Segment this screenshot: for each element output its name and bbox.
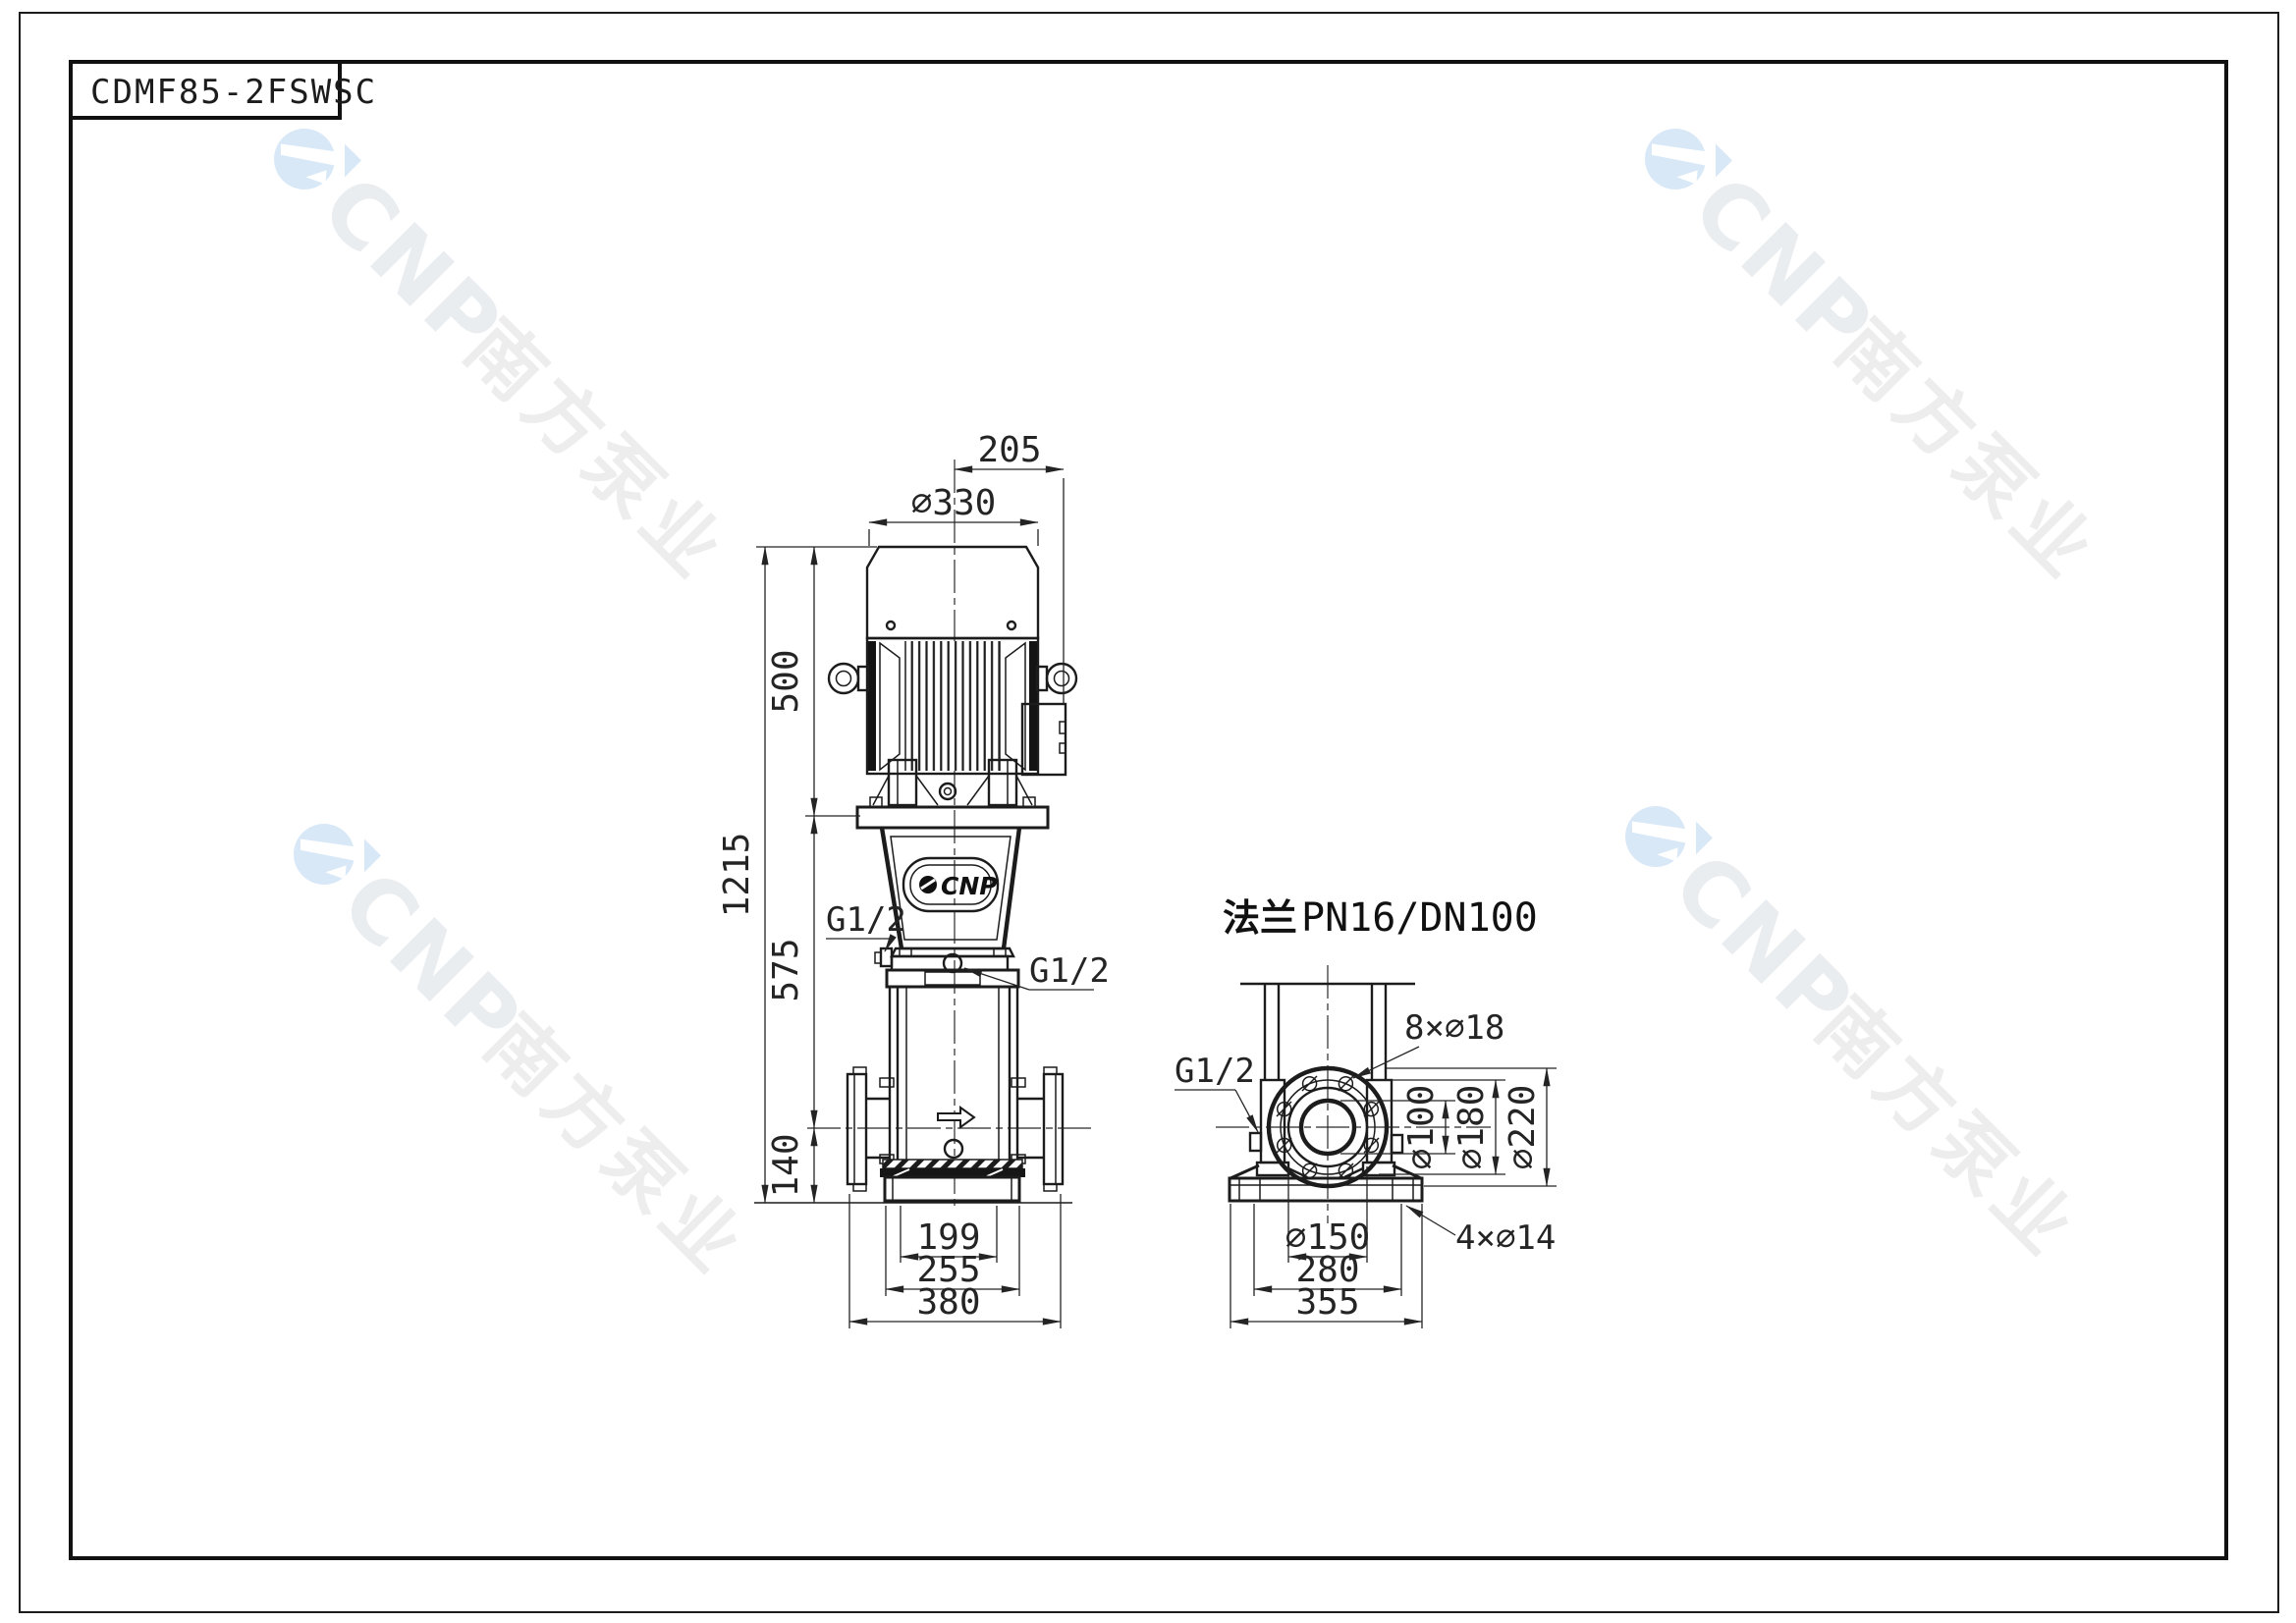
port-label-right: G1/2 [1029, 951, 1110, 991]
side-view: 法兰PN16/DN100 8×∅18 G1/2 ∅100 ∅180 ∅220 [1175, 895, 1557, 1328]
side-port-fitting [1250, 1133, 1261, 1151]
port-label-left: G1/2 [826, 900, 906, 940]
motor-fins [905, 641, 1000, 771]
dim-shaft-offset: 205 [977, 430, 1041, 470]
dim-pump-body-height: 575 [766, 938, 806, 1001]
dim-inlet-height: 140 [766, 1133, 806, 1197]
motor-shield-panel-left [880, 643, 900, 770]
flange-spec-label: 法兰PN16/DN100 [1223, 895, 1538, 941]
pump-base [880, 1160, 1025, 1201]
flow-direction-arrow-icon [938, 1108, 974, 1127]
drawing-sheet: CNP 南方泵业 CNP 南方泵业 CNP 南方泵业 [0, 0, 2296, 1623]
fan-cover-bolt-left [887, 622, 895, 629]
watermark-mid-left: CNP 南方泵业 [267, 796, 769, 1298]
dim-bolt-holes: 8×∅18 [1404, 1008, 1504, 1048]
drain-port [945, 1140, 962, 1158]
dim-motor-diameter: ∅330 [911, 483, 997, 523]
front-dimensions: 205 ∅330 1215 500 575 140 199 255 [717, 430, 1110, 1328]
dim-flange-span: 380 [916, 1282, 980, 1323]
dim-flange-od: ∅220 [1503, 1085, 1543, 1170]
lifting-eye-right [1037, 664, 1076, 693]
nameplate-window [925, 972, 980, 985]
motor-end-shield-right [1029, 641, 1037, 771]
watermarks: CNP 南方泵业 CNP 南方泵业 CNP 南方泵业 [247, 101, 2120, 1298]
lifting-eye-left [829, 664, 868, 693]
drawing-title: CDMF85-2FSWSC [90, 73, 377, 112]
dim-anchor-holes: 4×∅14 [1455, 1218, 1556, 1258]
terminal-box [1022, 704, 1066, 775]
watermark-company-text: 南方泵业 [449, 302, 744, 598]
front-view: CNP [717, 430, 1110, 1328]
pump-head [875, 948, 1018, 987]
fan-cover-bolt-right [1008, 622, 1015, 629]
side-base [1230, 1165, 1422, 1201]
dim-total-height: 1215 [717, 833, 757, 918]
dim-motor-height: 500 [766, 649, 806, 713]
dim-bolt-circle: ∅180 [1451, 1085, 1492, 1170]
watermark-company-text: 南方泵业 [468, 998, 764, 1293]
motor-stool-flange [857, 807, 1048, 828]
dim-base-width: 355 [1295, 1282, 1359, 1323]
badge-label: CNP [941, 872, 998, 900]
watermark-company-text: 南方泵业 [1800, 980, 2096, 1275]
dim-bore-diameter: ∅100 [1401, 1085, 1442, 1170]
motor-end-shield-left [868, 641, 876, 771]
motor-fan-cover [867, 547, 1038, 638]
side-port-label: G1/2 [1175, 1052, 1255, 1091]
watermark-mid-right: CNP 南方泵业 [1599, 779, 2101, 1280]
pump-barrel [890, 987, 1017, 1160]
watermark-top-left: CNP 南方泵业 [247, 101, 749, 603]
watermark-top-right: CNP 南方泵业 [1618, 101, 2120, 603]
watermark-company-text: 南方泵业 [1820, 302, 2115, 598]
